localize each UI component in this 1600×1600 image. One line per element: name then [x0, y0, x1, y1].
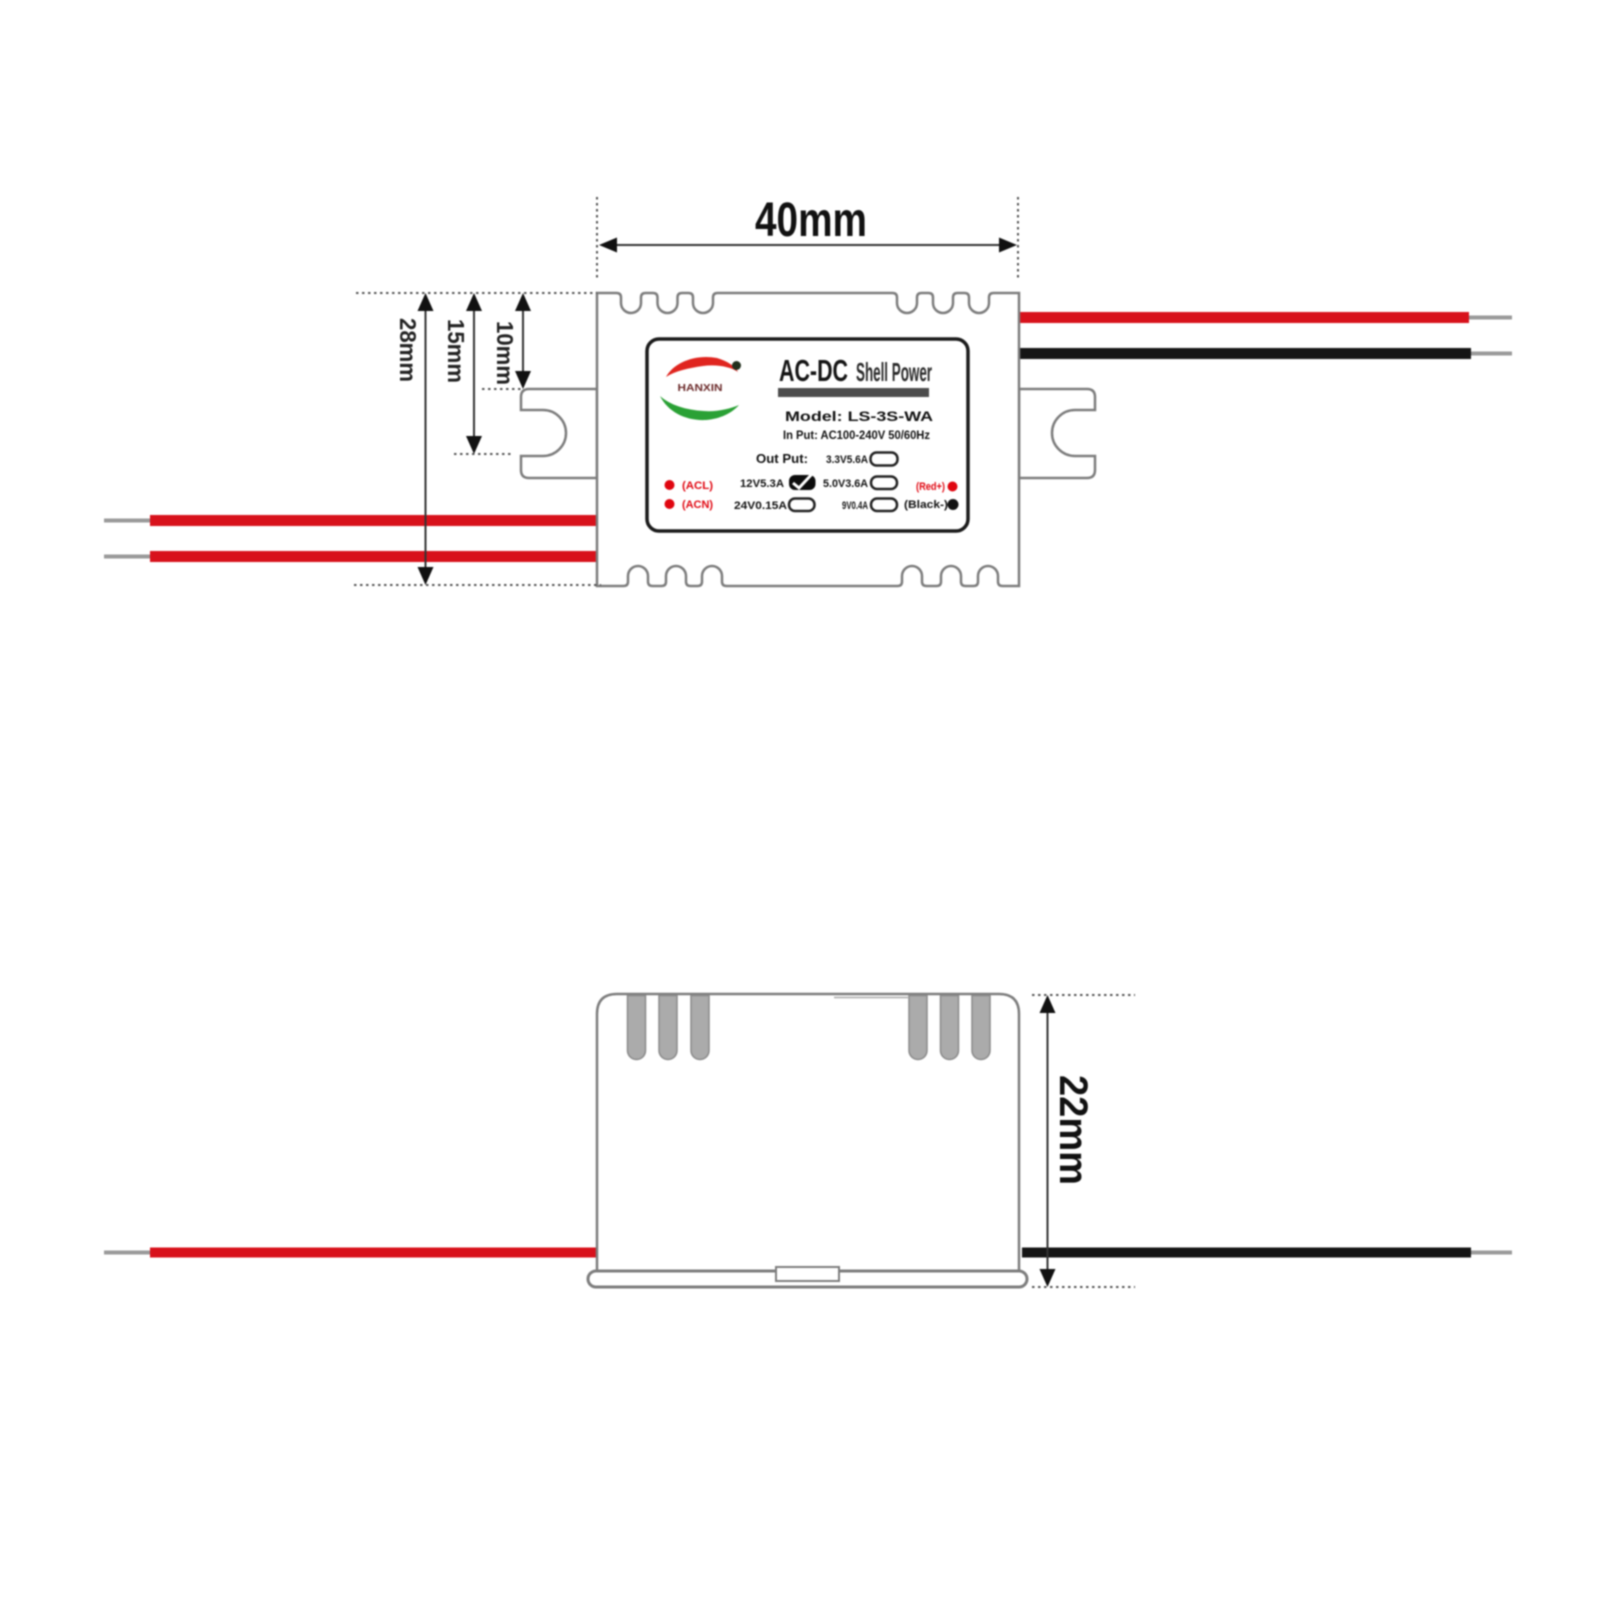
- svg-text:22mm: 22mm: [1051, 1075, 1095, 1185]
- svg-text:(Black-): (Black-): [904, 499, 948, 511]
- svg-text:5.0V3.6A: 5.0V3.6A: [823, 478, 868, 490]
- svg-text:Model: LS-3S-WA: Model: LS-3S-WA: [785, 408, 933, 424]
- svg-text:10mm: 10mm: [492, 321, 518, 385]
- svg-text:Shell Power: Shell Power: [856, 357, 932, 387]
- svg-text:40mm: 40mm: [755, 194, 867, 247]
- svg-text:In Put: AC100-240V 50/60Hz: In Put: AC100-240V 50/60Hz: [783, 430, 930, 442]
- svg-text:(Red+): (Red+): [916, 481, 945, 493]
- svg-text:15mm: 15mm: [443, 319, 469, 383]
- svg-text:12V5.3A: 12V5.3A: [740, 478, 784, 490]
- svg-text:(ACN): (ACN): [682, 499, 713, 511]
- svg-text:3.3V5.6A: 3.3V5.6A: [826, 454, 868, 466]
- svg-text:28mm: 28mm: [395, 318, 421, 382]
- svg-text:HANXIN: HANXIN: [678, 383, 723, 394]
- svg-text:AC-DC: AC-DC: [779, 353, 848, 388]
- svg-text:24V0.15A: 24V0.15A: [734, 500, 787, 512]
- svg-text:Out Put:: Out Put:: [756, 451, 808, 466]
- svg-text:9V0.4A: 9V0.4A: [842, 500, 868, 512]
- svg-text:(ACL): (ACL): [682, 480, 713, 492]
